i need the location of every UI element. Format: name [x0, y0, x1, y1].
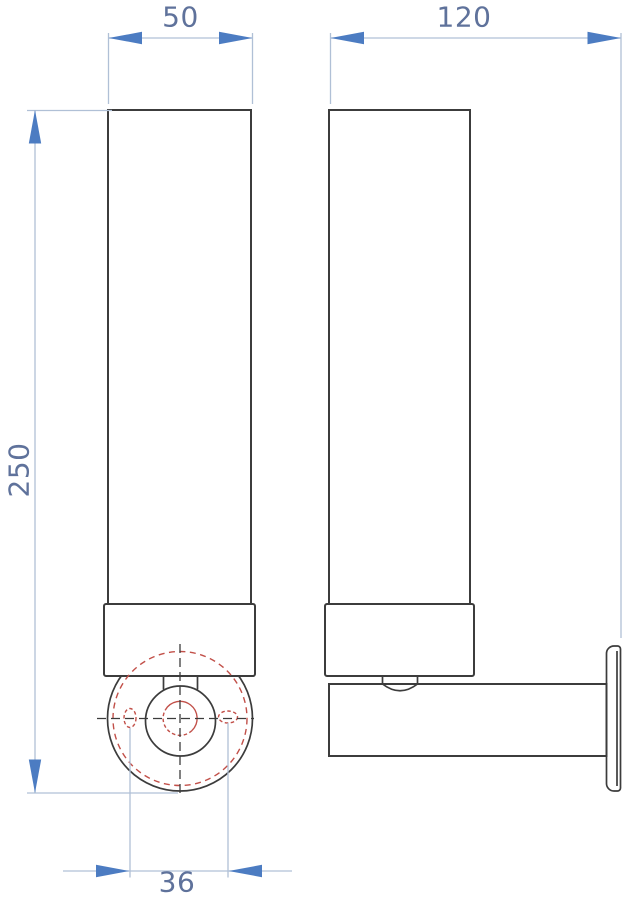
arrow-left-icon	[331, 32, 365, 44]
dimension-value: 120	[437, 1, 492, 34]
arrow-right-icon	[219, 32, 253, 44]
arrow-down-icon	[29, 760, 41, 794]
arrow-left-icon	[229, 865, 263, 877]
side-view	[325, 110, 621, 791]
front-view	[97, 110, 255, 794]
dimension-value: 36	[159, 866, 196, 897]
arrow-left-icon	[109, 32, 143, 44]
bracket-arm	[329, 684, 607, 756]
technical-drawing-canvas: 50 120 250 36	[0, 0, 628, 897]
arrow-right-icon	[96, 865, 130, 877]
wall-plate	[607, 646, 621, 791]
dimension-front-width: 50	[109, 1, 253, 105]
front-tube	[108, 110, 251, 604]
side-band	[325, 604, 474, 676]
arrow-up-icon	[29, 110, 41, 144]
dimension-value: 250	[3, 443, 36, 498]
dimension-value: 50	[162, 1, 199, 34]
side-tube	[329, 110, 470, 604]
arrow-right-icon	[588, 32, 622, 44]
sconce-dimension-drawing: 50 120 250 36	[0, 0, 628, 897]
